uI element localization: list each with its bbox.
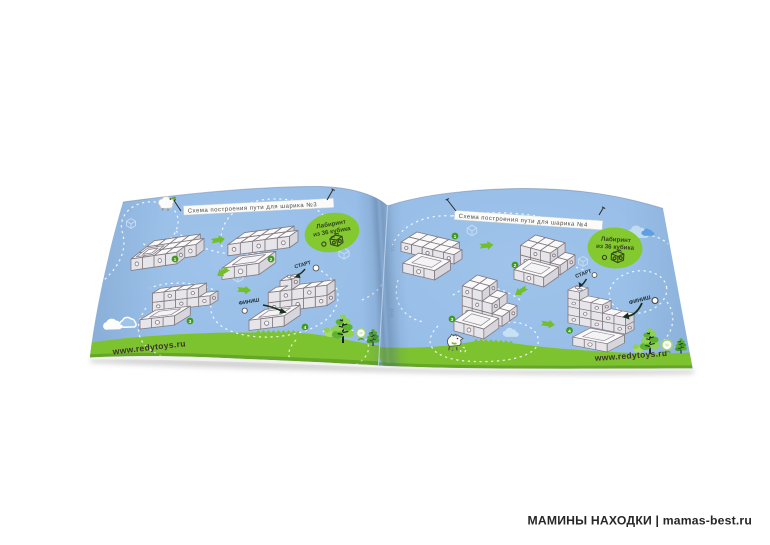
svg-text:МАМИНЫ НАХОДКИ | mamas-best.ru: МАМИНЫ НАХОДКИ | mamas-best.ru	[528, 514, 752, 528]
svg-text:2: 2	[514, 263, 517, 269]
svg-text:1: 1	[454, 234, 457, 240]
svg-text:3: 3	[189, 319, 192, 325]
svg-text:1: 1	[174, 257, 177, 263]
svg-text:4: 4	[304, 325, 307, 331]
svg-text:2: 2	[270, 257, 273, 263]
svg-text:4: 4	[568, 328, 571, 334]
svg-text:3: 3	[451, 317, 454, 323]
